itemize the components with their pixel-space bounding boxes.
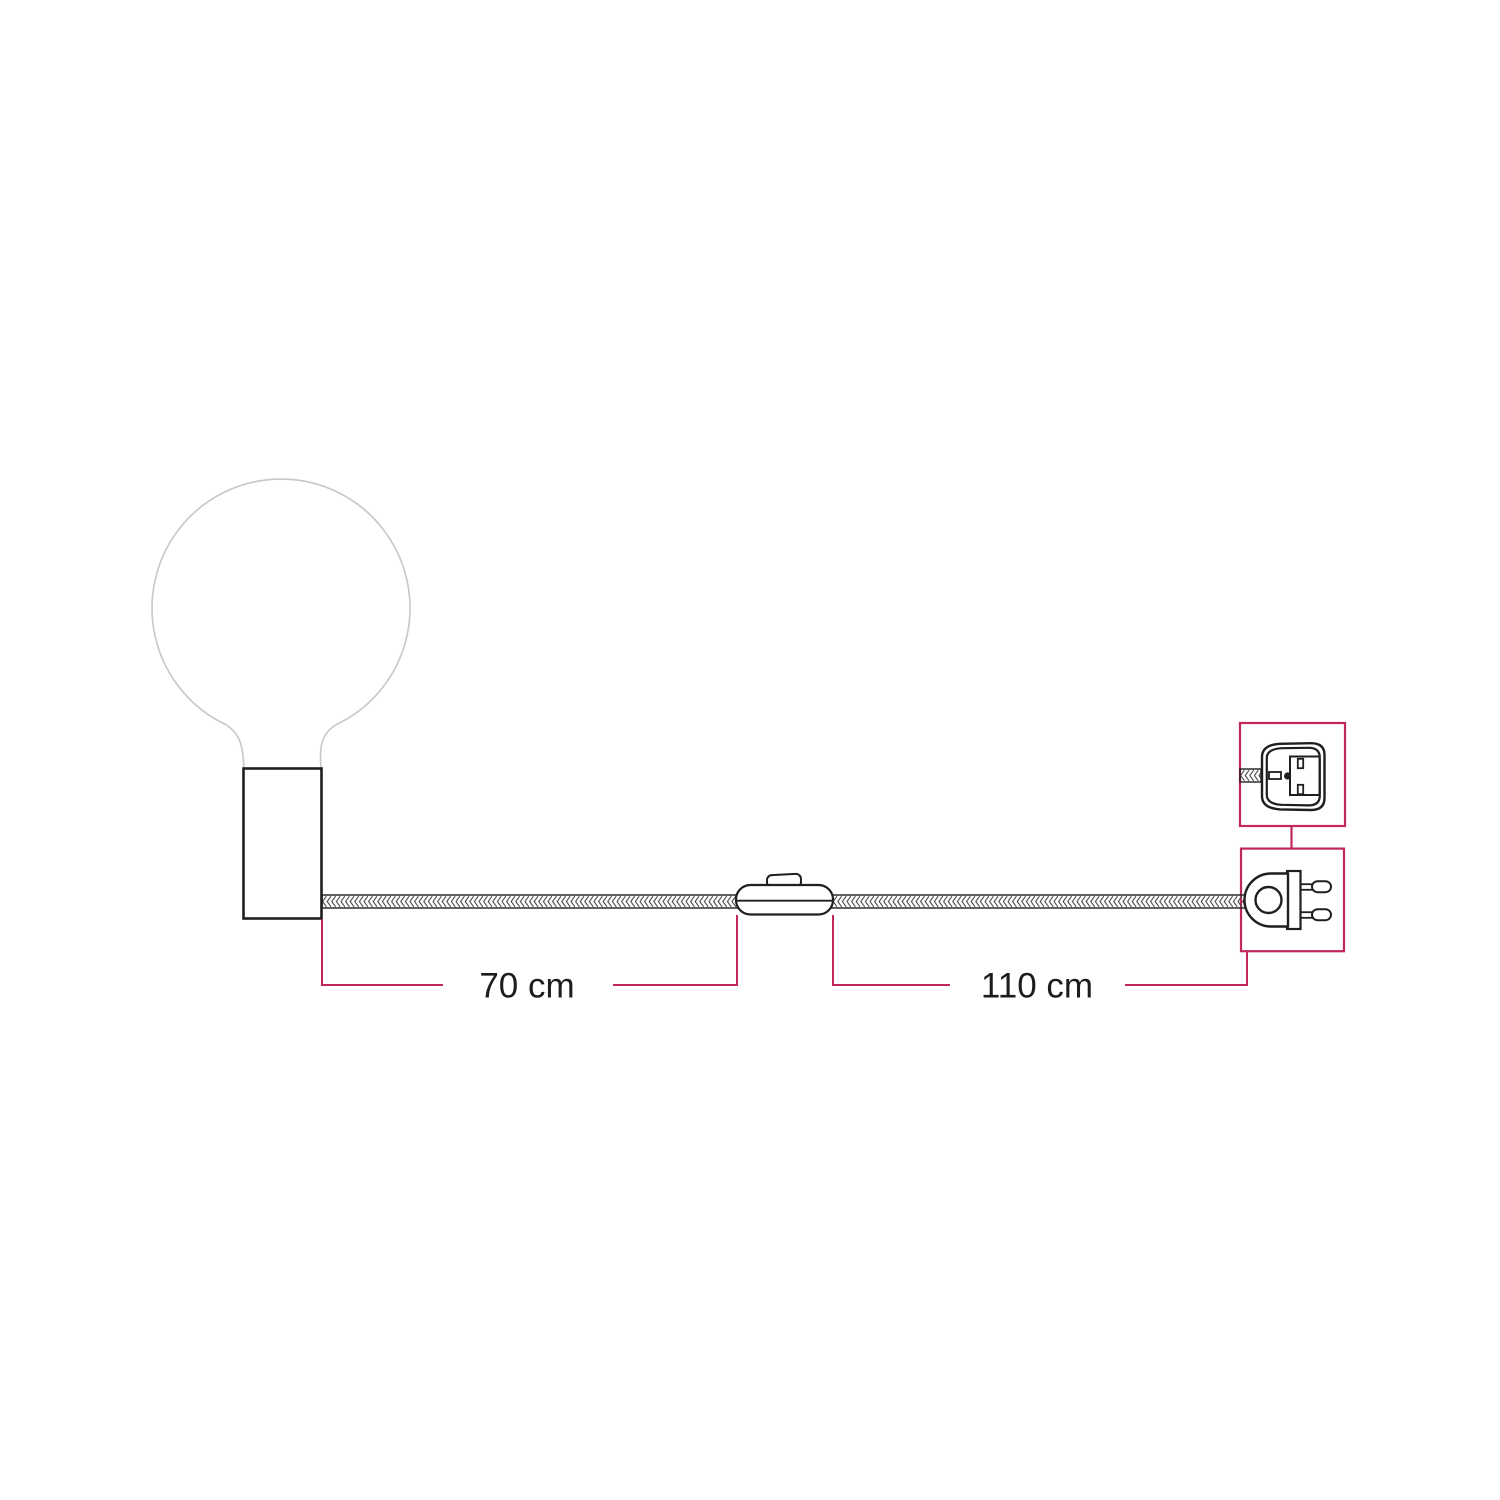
dim-70-left-segment <box>322 919 443 985</box>
dimension-annotations: 70 cm 110 cm <box>322 915 1247 1006</box>
light-bulb-icon <box>152 479 410 768</box>
diagram-canvas: 70 cm 110 cm <box>0 0 1500 1500</box>
plug-face-pin-slot-left <box>1269 772 1281 779</box>
plug-face-center-dot <box>1284 772 1291 779</box>
dim-110-right-segment <box>1125 951 1247 985</box>
bulb-globe-outline <box>152 479 410 768</box>
plug-side-view-icon <box>1245 871 1332 929</box>
dim-70-right-segment <box>613 915 737 985</box>
product-dimension-diagram: 70 cm 110 cm <box>0 0 1500 1500</box>
plug-finger-hole <box>1256 887 1282 913</box>
plug-pin-tip-top <box>1312 881 1331 892</box>
plug-face-pin-slot-top <box>1298 759 1303 768</box>
lamp-holder-icon <box>244 769 322 919</box>
lamp-holder-body <box>244 769 322 919</box>
dim-label-110cm: 110 cm <box>981 967 1093 1006</box>
plug-face-pin-slot-bottom <box>1298 785 1303 794</box>
dim-110-left-segment <box>833 915 950 985</box>
braided-cable-stub <box>1240 769 1261 782</box>
plug-face-view-icon <box>1262 743 1325 810</box>
inline-switch-icon <box>736 874 833 915</box>
plug-pin-tip-bottom <box>1312 909 1331 920</box>
switch-body <box>736 885 833 915</box>
dim-label-70cm: 70 cm <box>479 967 574 1006</box>
